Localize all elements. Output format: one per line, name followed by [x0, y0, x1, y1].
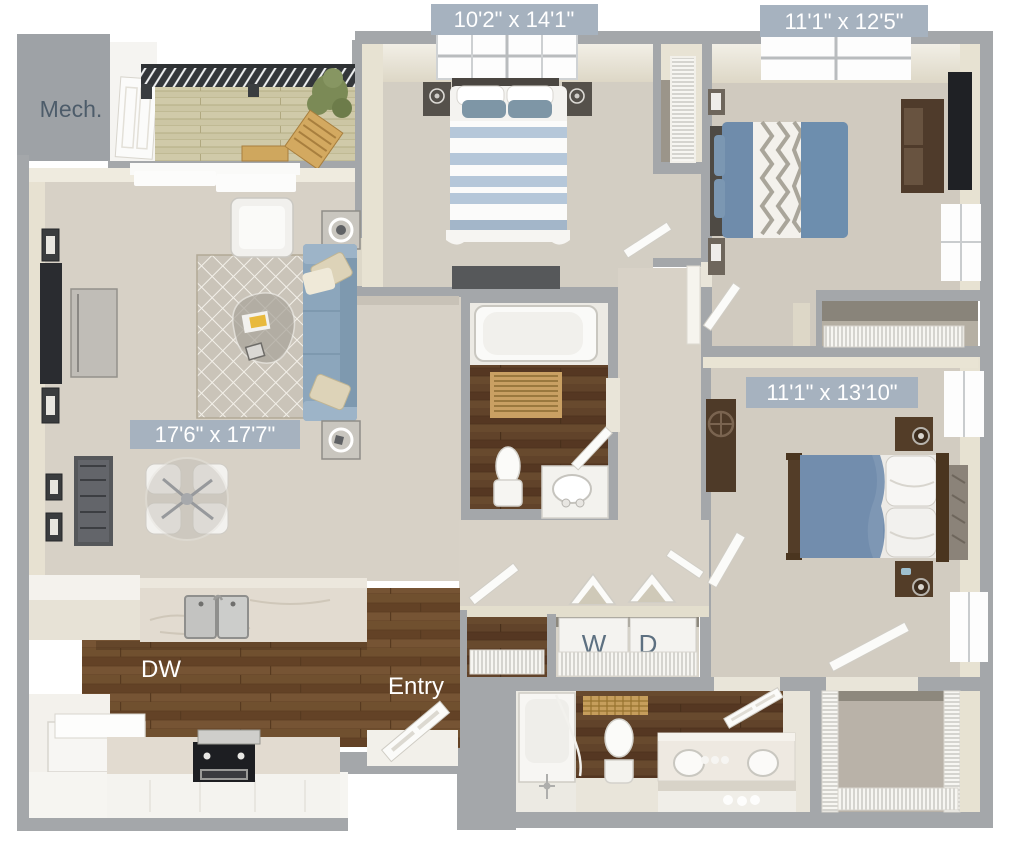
svg-text:17'6" x 17'7": 17'6" x 17'7" — [155, 422, 276, 447]
svg-text:11'1" x 13'10": 11'1" x 13'10" — [766, 380, 897, 405]
svg-text:Mech.: Mech. — [40, 96, 103, 122]
svg-text:11'1" x 12'5": 11'1" x 12'5" — [784, 9, 903, 34]
svg-text:10'2" x 14'1": 10'2" x 14'1" — [454, 7, 575, 32]
svg-text:DW: DW — [141, 656, 181, 683]
svg-text:Entry: Entry — [388, 673, 444, 700]
